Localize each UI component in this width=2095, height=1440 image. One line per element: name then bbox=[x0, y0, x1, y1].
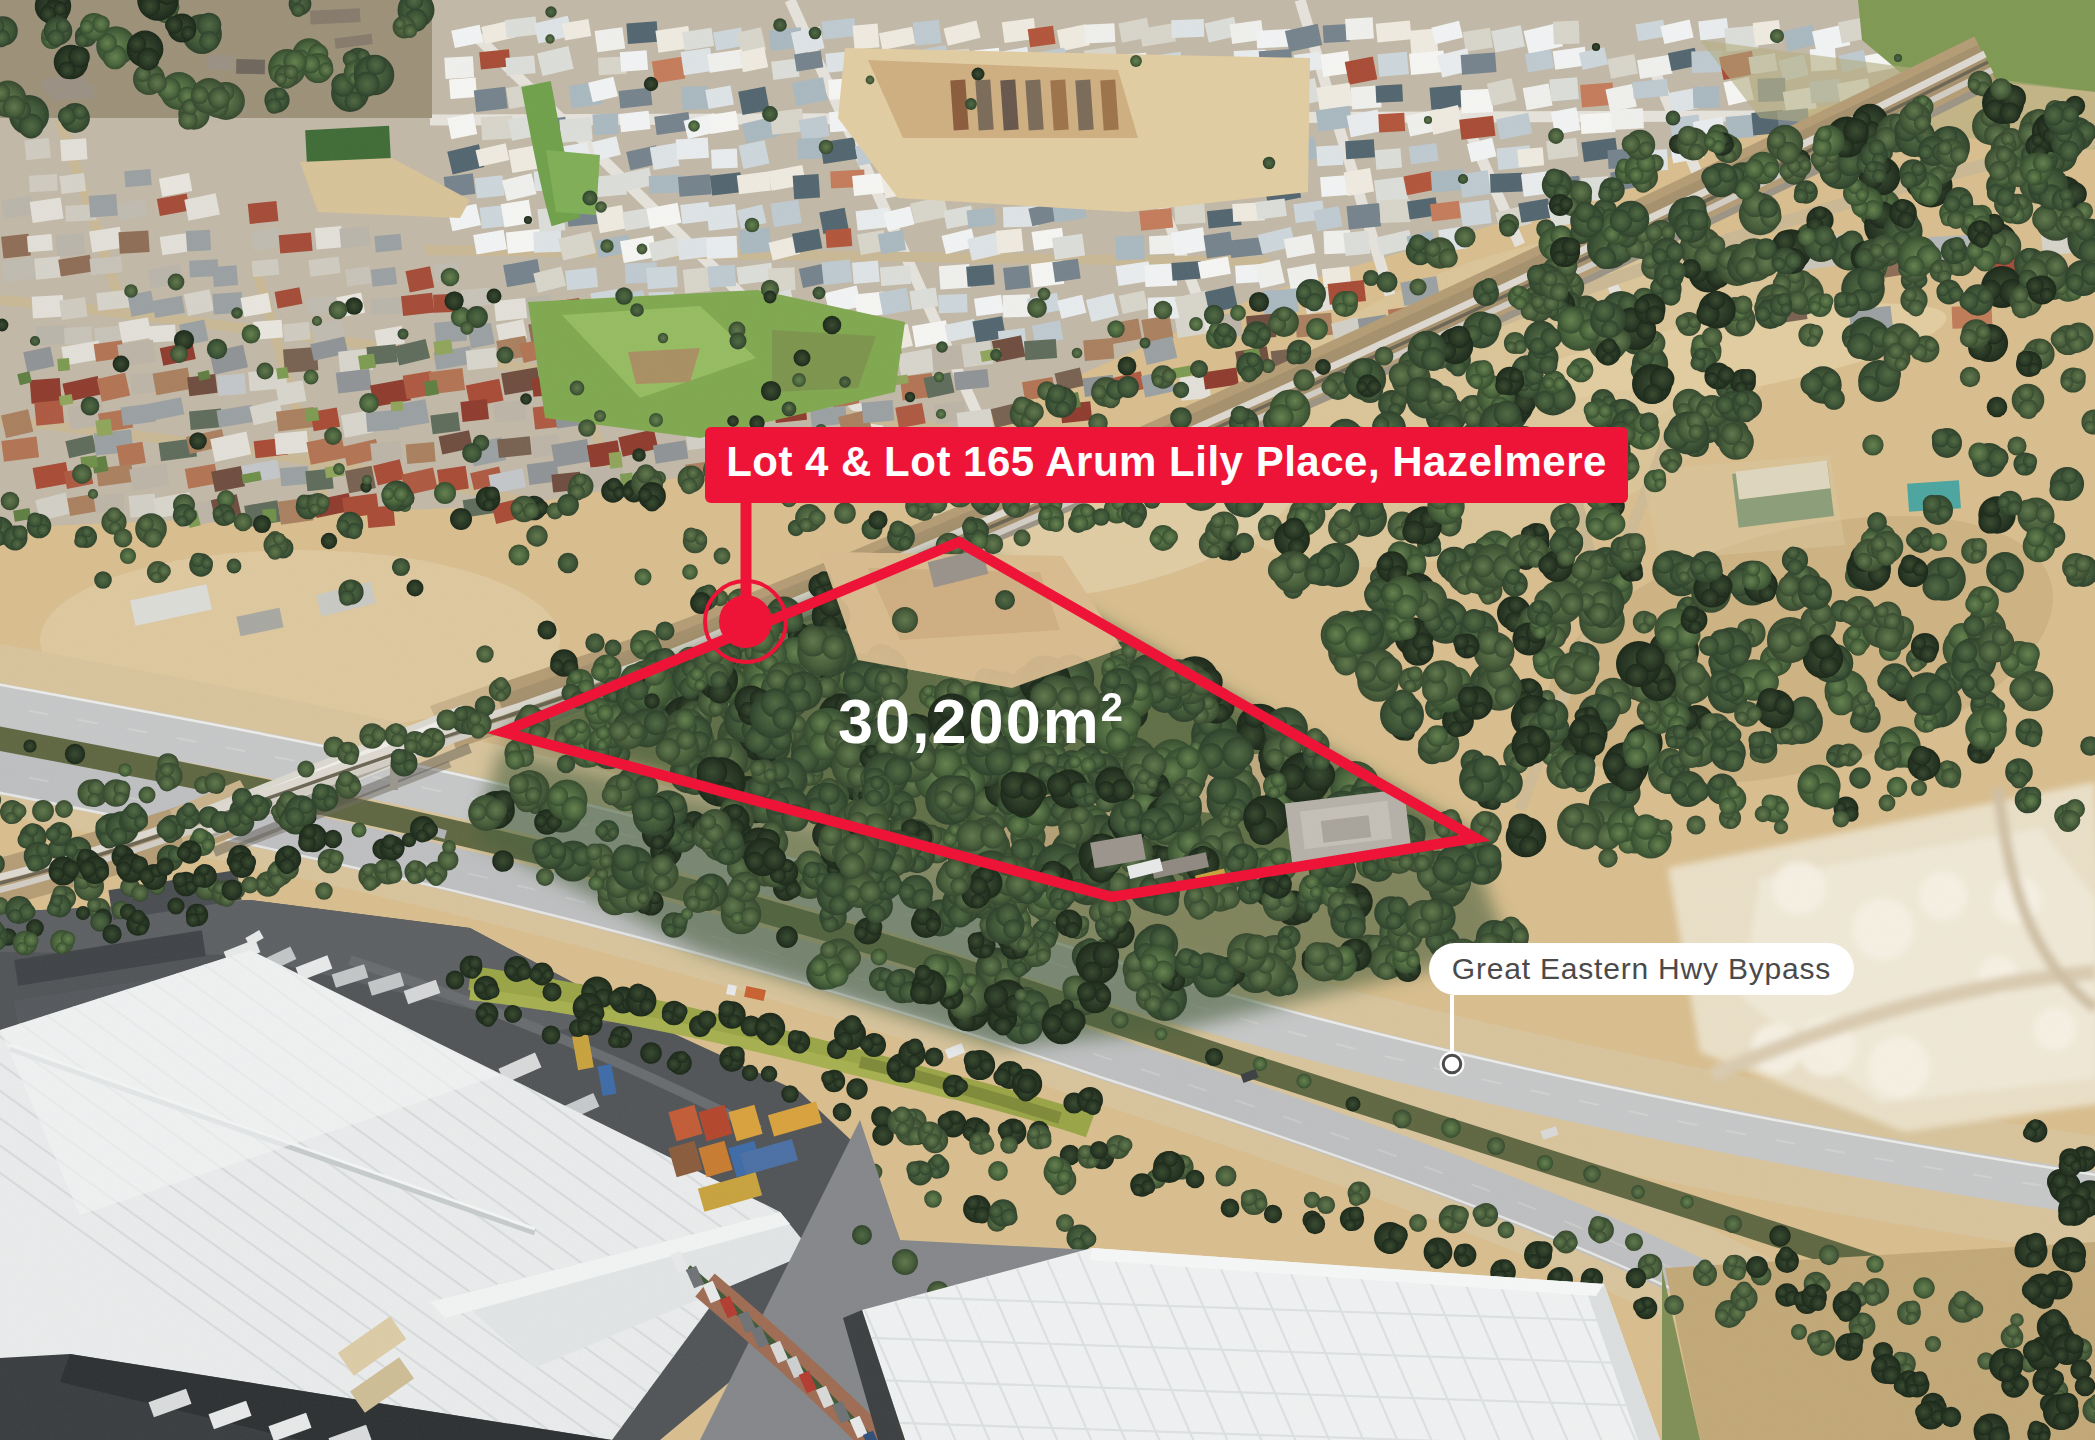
svg-text:30,200m2: 30,200m2 bbox=[838, 685, 1125, 756]
